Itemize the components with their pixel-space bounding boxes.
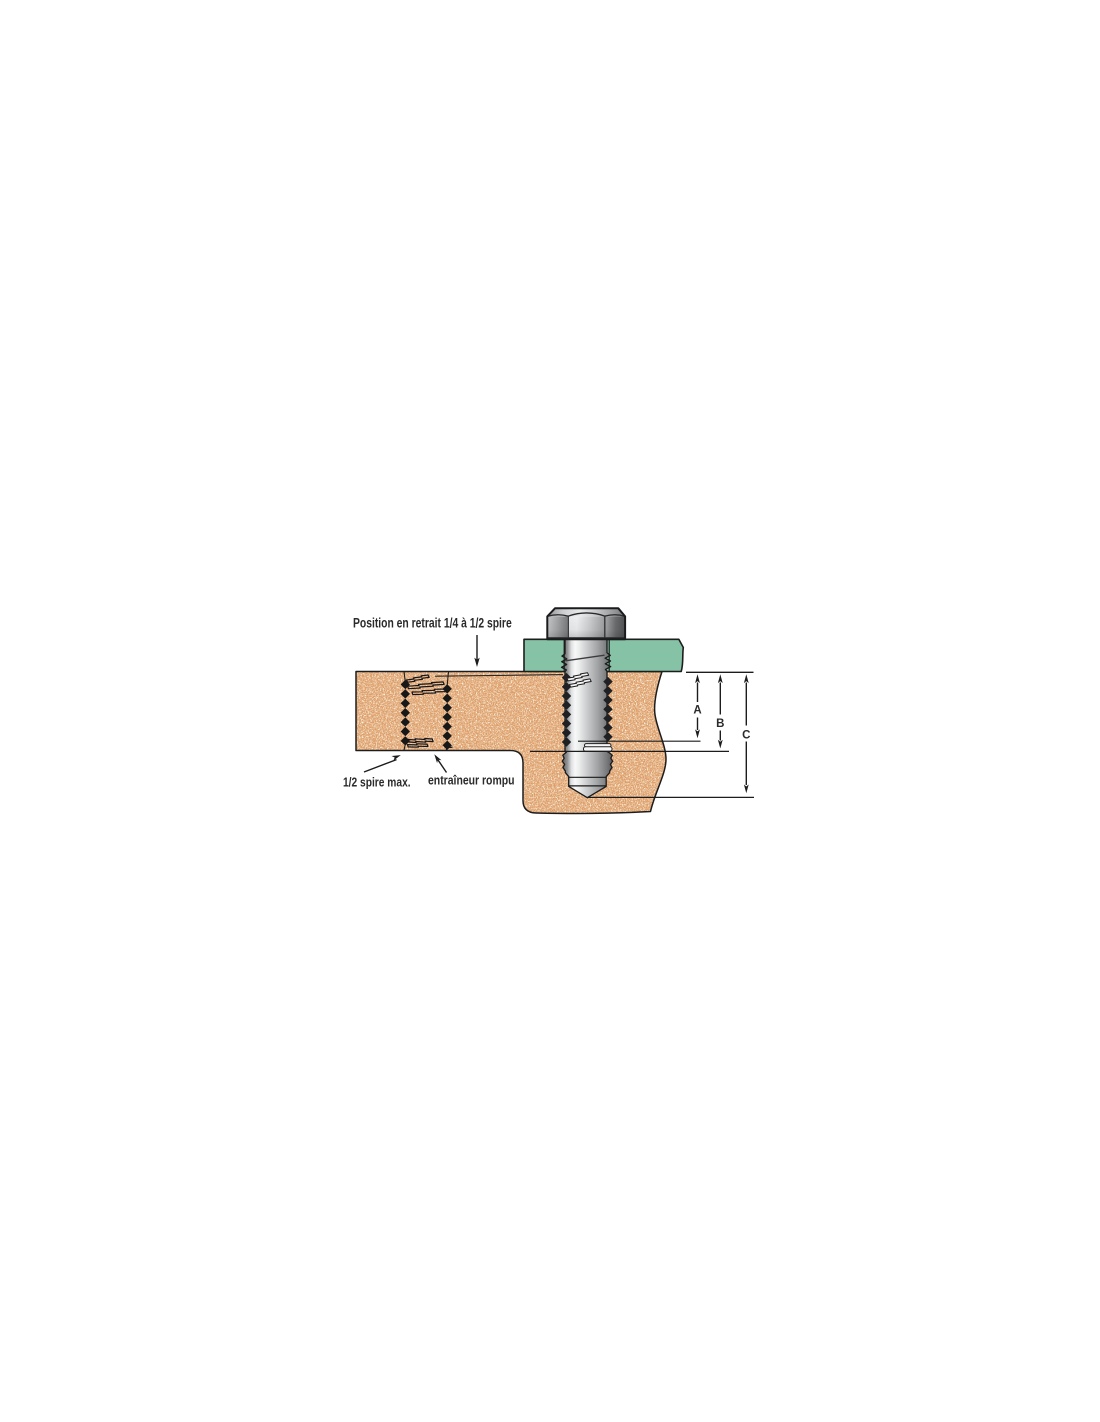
svg-text:A: A [693,705,701,717]
svg-text:entraîneur rompu: entraîneur rompu [428,772,515,787]
svg-text:C: C [742,729,750,741]
svg-text:B: B [716,718,724,730]
svg-text:1/2 spire max.: 1/2 spire max. [343,775,411,790]
svg-text:Position en retrait 1/4 à 1/2: Position en retrait 1/4 à 1/2 spire [353,616,512,631]
